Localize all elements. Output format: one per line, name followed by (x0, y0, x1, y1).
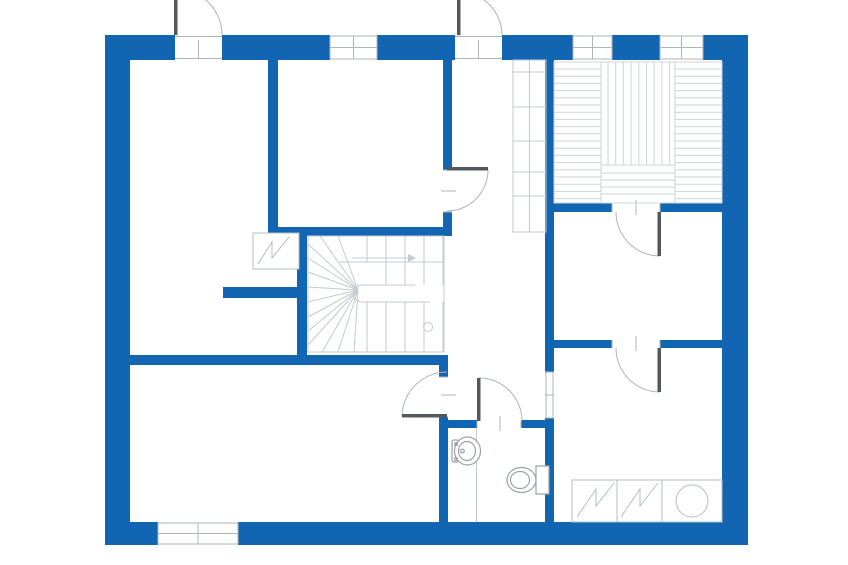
outer-wall-top-d (502, 35, 573, 60)
wall-sauna-bottom-b (660, 203, 722, 212)
layer-fixtures (452, 437, 549, 494)
outer-wall-top-c (377, 35, 455, 60)
wall-bathroom-left (439, 417, 448, 522)
stair-direction-arrowhead (408, 254, 416, 262)
wall-midright-bottom-b (660, 340, 722, 348)
sauna-left-bench-slats (554, 69, 601, 199)
layer-walls (105, 35, 748, 545)
wall-topleft-divider (268, 60, 278, 235)
stair-winder-4 (308, 258, 358, 290)
door-midright-room-leaf (658, 348, 662, 392)
wall-bathroom-top-a (439, 420, 477, 428)
wall-hall-stub (439, 365, 448, 377)
outer-wall-left (105, 35, 130, 545)
floor-plan (0, 0, 848, 565)
outer-wall-bottom-a (105, 522, 158, 545)
door-bottomleft-room-leaf (402, 414, 447, 418)
door-topmiddle-room-leaf (447, 167, 488, 171)
stair-winder-2 (338, 236, 358, 290)
stair-winder-10 (308, 290, 358, 345)
door-sauna-arc (616, 212, 660, 256)
stair-hairpin (354, 285, 431, 302)
wall-living-stub (223, 287, 307, 298)
stair-start-circle (424, 323, 433, 332)
stair-lower-treads (367, 302, 443, 352)
sauna-platform-slats (608, 62, 670, 165)
sauna-right-bench-slats (675, 69, 722, 199)
door-midright-room-arc (616, 348, 660, 392)
door-bathroom-leaf (477, 378, 481, 421)
exterior-door-1-arc (176, 0, 222, 35)
exterior-door-2-leaf (457, 0, 461, 35)
sauna-step-slats (601, 173, 675, 194)
wall-topmiddle-right-a (443, 60, 452, 170)
wall-living-bottom (128, 355, 448, 365)
outer-wall-top-e (612, 35, 660, 60)
toilet-tank (536, 466, 549, 494)
wall-topmiddle-right-b (443, 212, 452, 236)
exterior-door-2-arc (459, 0, 502, 35)
stair-upper-risers (386, 262, 443, 285)
floor-plan-svg (0, 0, 848, 565)
appliance-box-1 (572, 480, 617, 522)
door-sauna-leaf (658, 212, 662, 256)
fireplace-outline (253, 233, 299, 269)
layer-hall-closets (513, 60, 546, 232)
exterior-door-1-leaf (174, 0, 178, 35)
appliance-box-3 (662, 480, 722, 522)
door-bathroom-arc (479, 378, 522, 421)
outer-wall-bottom-b (238, 522, 748, 545)
door-bottomleft-room-arc (402, 372, 447, 417)
wall-midright-bottom-a (554, 340, 612, 348)
outer-wall-top-b (222, 35, 330, 60)
wall-sauna-bottom-a (554, 203, 612, 212)
stair-winder-1 (320, 236, 358, 290)
layer-symbols (253, 233, 722, 522)
layer-staircase (308, 236, 444, 352)
layer-sauna-interior (554, 62, 722, 203)
stair-winder-3 (308, 244, 358, 290)
outer-wall-right (722, 35, 748, 545)
